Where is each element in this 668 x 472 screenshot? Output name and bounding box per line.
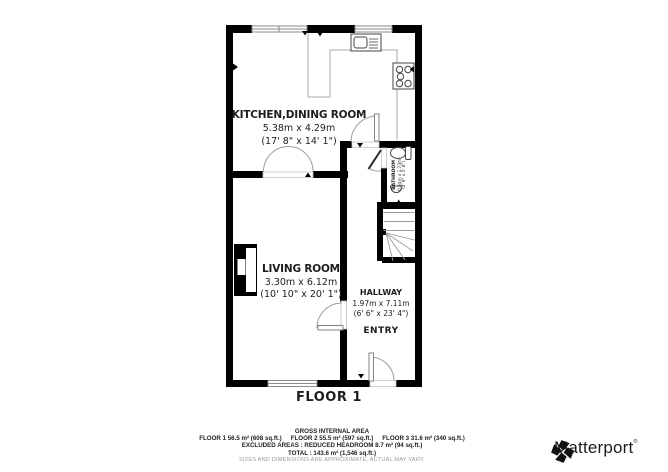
hallway-dim-metric: 1.97m x 7.11m (352, 299, 409, 308)
trademark-symbol: ® (633, 439, 637, 445)
matterport-pinwheel-icon (549, 438, 576, 465)
hallway-label: HALLWAY (360, 288, 402, 297)
door-leaf (318, 114, 379, 381)
floor-plan-page: KITCHEN,DINING ROOM 5.38m x 4.29m (17' 8… (0, 0, 668, 472)
bathroom-door-leaf (369, 150, 382, 169)
total-area-line: TOTAL : 143.6 m² (1,546 sq.ft.) (199, 450, 465, 457)
door-arc (264, 116, 395, 381)
disclaimer-text: SIZES AND DIMENSIONS ARE APPROXIMATE, AC… (199, 457, 465, 464)
bathroom-dim-imperial: (2' 9" x 5' 8") (402, 149, 407, 201)
floor3-area: FLOOR 3 31.6 m² (340 sq.ft.) (382, 435, 465, 442)
kitchen-room-label: KITCHEN,DINING ROOM (232, 109, 367, 121)
living-room-dim-metric: 3.30m x 6.12m (265, 277, 337, 288)
hob-icon (393, 63, 414, 89)
sink-icon (351, 34, 381, 51)
hallway-dim-imperial: (6' 6" x 23' 4") (354, 309, 409, 318)
area-summary-title: GROSS INTERNAL AREA (199, 428, 465, 435)
kitchen-room-dim-imperial: (17' 8" x 14' 1") (261, 136, 336, 147)
entry-label: ENTRY (363, 326, 398, 336)
stairs (384, 213, 415, 262)
fireplace (234, 244, 257, 296)
living-room-label: LIVING ROOM (262, 263, 340, 275)
floor-title: FLOOR 1 (296, 390, 362, 405)
floor1-area: FLOOR 1 56.5 m² (608 sq.ft.) (199, 435, 282, 442)
living-room-dim-imperial: (10' 10" x 20' 1") (260, 289, 341, 300)
floor2-area: FLOOR 2 55.5 m² (597 sq.ft.) (291, 435, 374, 442)
area-summary: GROSS INTERNAL AREA FLOOR 1 56.5 m² (608… (199, 428, 465, 464)
kitchen-room-dim-metric: 5.38m x 4.29m (263, 123, 335, 134)
excluded-areas-line: EXCLUDED AREAS : REDUCED HEADROOM 8.7 m²… (199, 442, 465, 449)
matterport-logo: Matterport® (549, 438, 638, 458)
floor-areas-line: FLOOR 1 56.5 m² (608 sq.ft.) FLOOR 2 55.… (199, 435, 465, 442)
bathroom-label-block: BATHROOM 0.84m x 1.73m (2' 9" x 5' 8") (393, 149, 407, 201)
